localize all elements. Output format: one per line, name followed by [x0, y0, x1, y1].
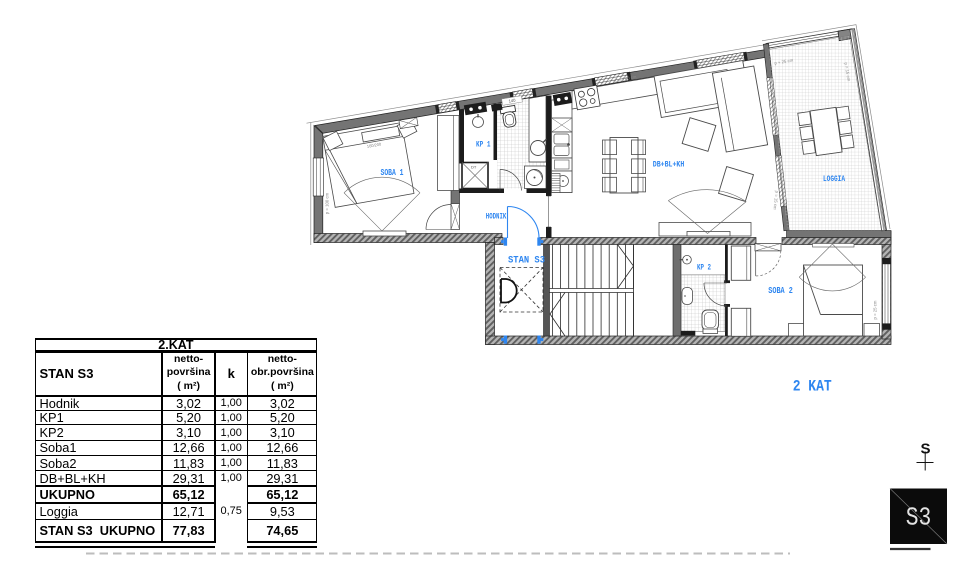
- svg-text:p = 15 cm: p = 15 cm: [772, 190, 779, 210]
- svg-text:S3: S3: [906, 504, 932, 534]
- svg-text:SOBA 2: SOBA 2: [768, 285, 793, 296]
- svg-text:KP 1: KP 1: [476, 140, 491, 150]
- svg-text:SOBA 1: SOBA 1: [381, 167, 404, 178]
- svg-text:STAN S3: STAN S3: [508, 255, 545, 267]
- svg-text:DB+BL+KH: DB+BL+KH: [653, 159, 685, 169]
- svg-text:2 KAT: 2 KAT: [793, 378, 832, 396]
- svg-text:p = 25 cm: p = 25 cm: [873, 300, 878, 319]
- svg-text:KP 2: KP 2: [697, 264, 711, 273]
- svg-text:LOGGIA: LOGGIA: [823, 174, 846, 184]
- svg-text:HODNIK: HODNIK: [486, 213, 507, 222]
- svg-text:p = 100 cm: p = 100 cm: [325, 192, 330, 214]
- svg-text:DT: DT: [471, 165, 477, 170]
